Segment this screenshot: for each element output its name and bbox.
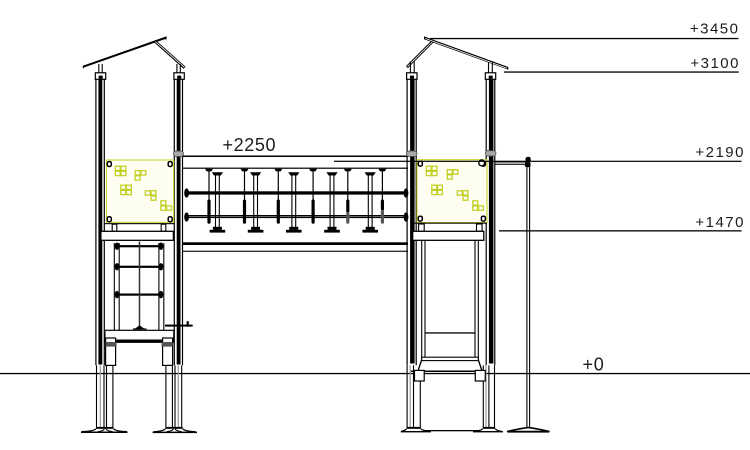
svg-text:+2250: +2250 bbox=[223, 135, 277, 155]
svg-text:+3100: +3100 bbox=[690, 55, 740, 72]
svg-text:+0: +0 bbox=[583, 354, 605, 374]
svg-text:+1470: +1470 bbox=[695, 214, 745, 231]
svg-text:+2190: +2190 bbox=[695, 144, 745, 161]
svg-text:+3450: +3450 bbox=[690, 21, 740, 38]
